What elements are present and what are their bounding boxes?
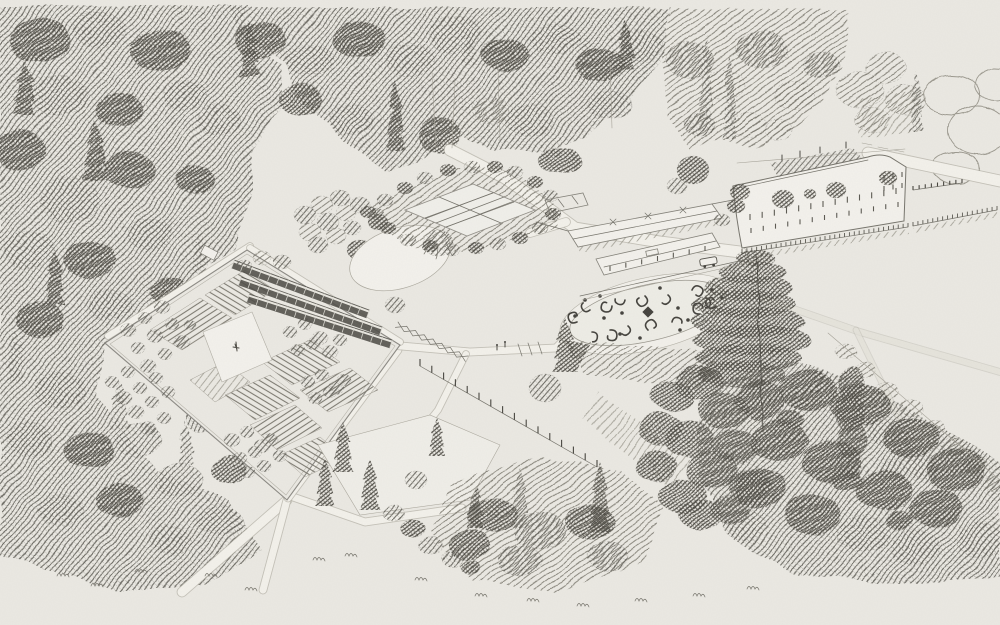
parterre-dot [620, 311, 624, 315]
tree-blob [253, 251, 271, 265]
tree-blob [400, 519, 424, 537]
tree-blob [487, 161, 503, 173]
tree-blob [326, 228, 346, 244]
tree-blob [234, 22, 286, 58]
tree-blob [74, 12, 126, 48]
fruit-tree [301, 376, 315, 387]
tree-blob [417, 172, 433, 184]
tree-blob [156, 464, 204, 496]
tree-blob [468, 242, 484, 254]
tree-blob [542, 190, 558, 202]
tree-blob [826, 182, 846, 198]
fruit-tree [154, 300, 170, 313]
tree-blob [507, 166, 523, 178]
fruit-tree [308, 392, 322, 403]
tree-blob [775, 81, 815, 109]
fruit-tree [174, 335, 190, 348]
parterre-dot [618, 332, 622, 336]
figure-head [504, 341, 506, 343]
tree-blob [330, 190, 350, 206]
tree-blob [866, 53, 906, 83]
tree-blob [856, 470, 912, 510]
fruit-tree [149, 372, 163, 383]
fruit-tree [262, 433, 278, 446]
fruit-tree [233, 452, 247, 463]
tree-blob [96, 94, 144, 126]
tree-blob [804, 189, 816, 199]
tree-blob [638, 414, 682, 446]
parterre-dot [686, 318, 690, 322]
tree-blob [490, 238, 506, 250]
tree-blob [334, 22, 386, 58]
tree-blob [588, 541, 628, 571]
estate-aerial-pencil-sketch [0, 0, 1000, 625]
tree-blob [784, 494, 840, 534]
fruit-tree [116, 391, 132, 404]
fruit-tree [161, 386, 175, 397]
tree-blob [468, 498, 516, 532]
tree-blob [464, 161, 480, 173]
tree-blob [776, 410, 804, 430]
tree-blob [527, 176, 543, 188]
tree-blob [636, 451, 676, 481]
tree-blob [831, 469, 861, 491]
fruit-tree [306, 338, 320, 349]
tree-blob [440, 164, 456, 176]
tree-blob [734, 469, 786, 507]
fruit-tree [337, 374, 351, 385]
fruit-tree [140, 421, 156, 434]
tree-blob [830, 384, 890, 426]
tree-blob [734, 381, 786, 419]
tree-blob [506, 104, 554, 136]
tree-blob [714, 214, 730, 226]
tree-blob [6, 232, 54, 268]
tree-blob [198, 505, 242, 535]
tree-blob [441, 550, 463, 566]
parterre-dot [676, 306, 680, 310]
tree-blob [273, 255, 291, 269]
tree-blob [328, 105, 372, 135]
tree-blob [736, 32, 788, 68]
tree-blob [538, 147, 582, 173]
tree-blob [34, 372, 86, 408]
fruit-tree [131, 342, 145, 353]
parterre-dot [678, 328, 682, 332]
tree-blob [10, 18, 70, 62]
fruit-tree [128, 405, 144, 418]
tree-blob [130, 30, 190, 70]
tree-blob [444, 244, 460, 256]
tree-blob [175, 166, 215, 194]
fruit-tree [248, 446, 262, 457]
tree-blob [16, 302, 64, 338]
tree-blob [884, 418, 940, 458]
fruit-tree [140, 359, 156, 372]
tree-blob [198, 105, 242, 135]
tree-blob [286, 44, 334, 76]
tree-blob [514, 512, 566, 548]
tree-blob [96, 484, 144, 516]
tree-blob [512, 232, 528, 244]
tree-blob [588, 90, 632, 120]
tree-blob [730, 184, 750, 200]
tree-blob [88, 290, 132, 320]
small-round-tree [385, 297, 405, 313]
tree-blob [38, 494, 82, 526]
tree-blob [545, 208, 561, 220]
figure-head [496, 344, 498, 346]
tree-blob [6, 422, 54, 458]
fruit-tree [291, 344, 305, 355]
fruit-tree [323, 386, 337, 397]
fruit-tree [273, 450, 287, 461]
tree-blob [32, 75, 88, 115]
tree-blob [236, 260, 252, 272]
tree-blob [128, 219, 172, 251]
tree-blob [838, 516, 890, 552]
tree-blob [377, 194, 393, 206]
fruit-tree [224, 433, 240, 446]
tree-blob [481, 39, 529, 71]
tree-blob [64, 432, 116, 468]
fruit-tree [121, 366, 135, 377]
tree-blob [532, 222, 548, 234]
tree-blob [382, 504, 404, 520]
fruit-tree [133, 382, 147, 393]
tree-blob [780, 370, 836, 410]
parterre-dot [602, 316, 606, 320]
fruit-tree [241, 466, 255, 477]
fruit-tree [138, 312, 152, 323]
fruit-tree [315, 369, 329, 380]
tree-blob [804, 52, 840, 78]
fruit-tree [120, 323, 136, 336]
tree-blob [40, 178, 100, 222]
tree-blob [879, 171, 897, 185]
tree-blob [397, 182, 413, 194]
tree-blob [422, 240, 438, 252]
fruit-tree [184, 320, 196, 330]
fruit-tree [105, 376, 119, 387]
tree-blob [498, 544, 542, 576]
tree-blob [764, 120, 792, 140]
tree-blob [64, 242, 116, 278]
tree-blob [308, 237, 328, 253]
tree-blob [772, 190, 794, 208]
young-round-tree [405, 471, 427, 489]
tree-blob [343, 221, 361, 235]
parterre-dot [658, 286, 662, 290]
tree-blob [926, 449, 986, 491]
tree-blob [420, 536, 444, 554]
tree-blob [855, 362, 877, 378]
tree-blob [386, 44, 434, 76]
tree-blob [835, 345, 855, 359]
tree-blob [727, 199, 745, 213]
fruit-tree [157, 412, 171, 423]
tree-blob [278, 85, 322, 115]
fruit-tree [240, 426, 254, 437]
fruit-tree [147, 329, 163, 342]
fruit-tree [283, 326, 297, 337]
fruit-tree [257, 460, 271, 471]
tree-blob [472, 97, 508, 123]
tree-blob [104, 152, 156, 188]
tree-blob [460, 561, 480, 575]
tree-blob [892, 531, 940, 565]
tree-blob [150, 526, 190, 554]
tree-blob [311, 196, 333, 214]
round-specimen-tree [529, 374, 561, 402]
sketch-canvas [0, 0, 1000, 625]
fruit-tree [158, 348, 172, 359]
tree-blob [722, 508, 766, 540]
fruit-tree [333, 334, 347, 345]
tree-blob [163, 80, 207, 110]
tree-blob [910, 489, 962, 527]
tree-blob [360, 206, 376, 218]
fruit-tree [322, 345, 338, 358]
tree-blob [400, 234, 416, 246]
fruit-tree [165, 318, 179, 329]
tree-blob [566, 505, 614, 539]
tree-blob [667, 178, 687, 194]
tree-blob [886, 510, 914, 530]
parterre-dot [638, 336, 642, 340]
tree-blob [531, 24, 579, 56]
parterre-dot [573, 314, 577, 318]
fruit-tree [145, 396, 159, 407]
